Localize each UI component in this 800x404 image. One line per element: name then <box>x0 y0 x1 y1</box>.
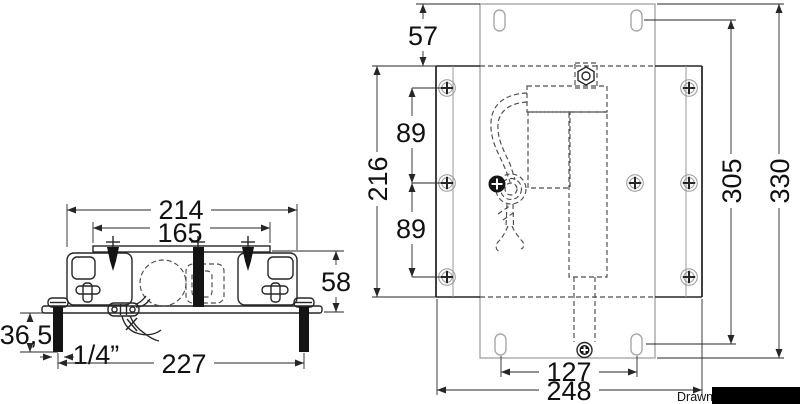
actuator-hidden <box>527 86 607 342</box>
cable-connector <box>108 296 161 341</box>
drawing-svg: 214 165 58 36,5 1/4” <box>0 0 800 404</box>
phillips-screw <box>439 175 456 192</box>
phillips-screw <box>439 269 456 286</box>
hidden-cable <box>489 93 528 251</box>
dim-label-216: 216 <box>363 156 393 201</box>
dim-label-quarter-inch: 1/4” <box>73 340 120 370</box>
dim-label-36-5: 36,5 <box>0 320 52 350</box>
dim-label-305: 305 <box>717 158 747 203</box>
redaction-box <box>712 387 800 404</box>
rail-profile <box>42 246 322 313</box>
grommet-screw <box>489 176 506 193</box>
hex-bolt <box>575 63 597 88</box>
center-bottom-screw <box>577 343 592 358</box>
phillips-screw <box>439 80 456 97</box>
dim-label-58: 58 <box>321 267 351 297</box>
dim-label-227: 227 <box>161 349 206 379</box>
dim-label-248: 248 <box>546 376 591 404</box>
phillips-screw <box>681 269 698 286</box>
slot-bottom-left <box>495 334 506 355</box>
motor-section-hidden <box>140 260 224 306</box>
upper-plate <box>480 4 655 358</box>
base-flange <box>42 306 322 313</box>
dim-label-165: 165 <box>157 218 202 248</box>
dim-label-330: 330 <box>765 158 795 203</box>
phillips-screw <box>681 175 698 192</box>
dim-label-89-top: 89 <box>396 118 426 148</box>
technical-drawing-canvas: 214 165 58 36,5 1/4” <box>0 0 800 404</box>
top-view: 57 216 89 89 305 <box>363 4 795 404</box>
dim-label-57: 57 <box>408 21 438 51</box>
dim-label-89-bottom: 89 <box>396 214 426 244</box>
phillips-screw <box>681 80 698 97</box>
phillips-screw-center <box>627 175 644 192</box>
drive-spindle <box>193 247 204 307</box>
slot-top-right <box>631 10 642 31</box>
side-view: 214 165 58 36,5 1/4” <box>0 195 351 379</box>
rail-screws <box>439 80 698 286</box>
slot-top-left <box>494 10 505 31</box>
footer: Drawn fro <box>677 387 800 404</box>
slot-bottom-right <box>631 334 642 355</box>
